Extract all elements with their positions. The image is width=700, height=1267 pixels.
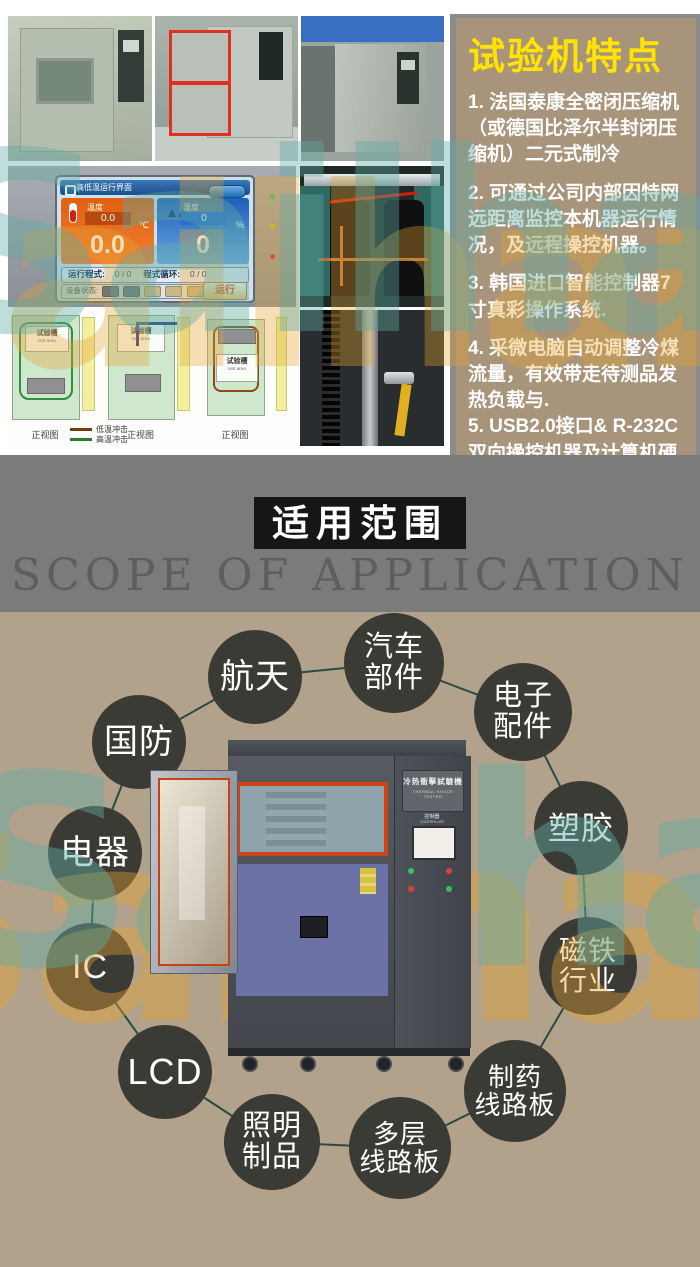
features-column: 试验机特点 1. 法国泰康全密闭压缩机（或德国比泽尔半封闭压缩机）二元式制冷 2… xyxy=(450,14,700,455)
indicator-red xyxy=(408,886,414,892)
status-button xyxy=(102,286,119,297)
compressor xyxy=(330,200,370,296)
controller-caption-en: CONTROLLER xyxy=(402,820,462,824)
chrome-valve xyxy=(384,372,414,384)
humidity-setpoint: 0 xyxy=(181,212,227,225)
chamber-control-strip xyxy=(259,32,283,80)
photo-controller-screen: 高低温运行界面 温度 0.0 ℃ 0.0 ▲▲ 湿度 0 % xyxy=(8,166,296,307)
hmi-menu-button xyxy=(208,185,246,198)
status-button xyxy=(123,286,140,297)
precool-box xyxy=(218,329,256,344)
steel-rail xyxy=(362,310,378,446)
machine-nameplate: 冷热衝擊試驗機 THERMAL SHOCK TESTER xyxy=(402,770,464,812)
indicator-red xyxy=(446,868,452,874)
bubble-pharma-circuit-board: 制药 线路板 xyxy=(464,1040,566,1142)
test-chamber-box: 试验槽 test area xyxy=(216,354,258,382)
diagram-front-view-3: 试验槽 test area xyxy=(207,319,265,416)
blue-ceiling xyxy=(301,16,444,42)
diagram-front-view-2: 试验槽 test area xyxy=(108,315,175,420)
controller-caption-cn: 控制器 xyxy=(402,813,462,820)
test-chamber-label: 试验槽 xyxy=(217,357,257,366)
humidity-unit: % xyxy=(236,220,244,230)
photo-collage: 高低温运行界面 温度 0.0 ℃ 0.0 ▲▲ 湿度 0 % xyxy=(0,14,448,455)
temperature-zone: 温度 0.0 ℃ 0.0 xyxy=(61,198,154,264)
door-window-sheen xyxy=(179,806,205,920)
scope-title-cn: 适用范围 xyxy=(254,497,466,549)
bubble-label: 线路板 xyxy=(474,1091,555,1119)
program-status-bar: 运行程式:0 / 0 程式循环:0 / 0 xyxy=(61,267,249,283)
temperature-unit: ℃ xyxy=(139,220,149,231)
feature-item: 2. 可通过公司内部因特网远距离监控本机器运行情况，及远程操控机器。 xyxy=(468,181,684,260)
caster-wheel xyxy=(300,1056,316,1072)
yellow-valve-handle xyxy=(394,384,411,437)
bubble-label: IC xyxy=(72,949,108,986)
chrome-bar xyxy=(304,174,440,186)
chamber-mini-screen xyxy=(401,60,415,70)
bubble-label: 电器 xyxy=(60,835,130,872)
scope-banner-section: 适用范围 SCOPE OF APPLICATION xyxy=(0,455,700,612)
bubble-label: 磁铁 xyxy=(559,936,617,966)
test-chamber-label: 试验槽 xyxy=(118,327,164,336)
hmi-title-text: 高低温运行界面 xyxy=(76,183,132,192)
chamber-mini-screen xyxy=(123,40,139,52)
bubble-label: 汽车 xyxy=(364,632,424,663)
hmi-screen: 高低温运行界面 温度 0.0 ℃ 0.0 ▲▲ 湿度 0 % xyxy=(55,175,255,303)
legend-row: 高温冲击 xyxy=(70,434,128,444)
heater-box xyxy=(125,374,161,392)
machine-photo: 冷热衝擊試驗機 THERMAL SHOCK TESTER 控制器 CONTROL… xyxy=(150,740,470,1072)
bubble-multilayer-circuit-board: 多层 线路板 xyxy=(349,1097,451,1199)
bubble-label: 航天 xyxy=(220,659,290,696)
lower-door-latch xyxy=(300,916,328,938)
run-button: 运行 xyxy=(203,282,247,300)
page: 高低温运行界面 温度 0.0 ℃ 0.0 ▲▲ 湿度 0 % xyxy=(0,0,700,1267)
yellow-duct xyxy=(276,317,287,411)
applications-section: Sailham Sailham 冷热衝擊試驗機 THERMAL SHOCK TE… xyxy=(0,612,700,1267)
diagram-front-view-1: 试验槽 test area xyxy=(12,315,80,420)
bezel-led-green xyxy=(270,194,275,199)
copper-pipe xyxy=(340,226,343,286)
status-button xyxy=(144,286,161,297)
feature-item: 5. USB2.0接口& R-232C双向操控机器及计算机硬盘储存数据. xyxy=(468,414,684,455)
duct-pipe xyxy=(136,322,139,346)
bubble-electronic-parts: 电子 配件 xyxy=(474,663,572,761)
thermometer-icon xyxy=(69,203,77,223)
status-button xyxy=(165,286,182,297)
photo-chamber-side xyxy=(301,16,444,161)
chamber-rack xyxy=(266,792,326,846)
bubble-lighting-products: 照明 制品 xyxy=(224,1094,320,1190)
legend-row: 低温冲击 xyxy=(70,424,128,434)
test-chamber-box: 试验槽 test area xyxy=(117,324,165,352)
legend-label: 高温冲击 xyxy=(96,434,128,445)
bubble-label: 行业 xyxy=(559,966,617,996)
test-chamber-box: 试验槽 test area xyxy=(25,326,69,352)
machine-viewing-window xyxy=(236,782,388,856)
diagram-legend: 低温冲击 高温冲击 xyxy=(70,424,128,444)
program-label: 运行程式: xyxy=(68,269,105,279)
feature-item: 3. 韩国进口智能控制器7寸真彩操作系统. xyxy=(468,271,684,323)
machine-lower-door xyxy=(236,864,388,996)
chamber-side-wall xyxy=(301,46,335,152)
controller-caption: 控制器 CONTROLLER xyxy=(402,813,462,824)
bubble-electrical-appliances: 电器 xyxy=(48,806,142,900)
bubble-label: 多层 xyxy=(373,1120,427,1148)
open-door-lower xyxy=(169,82,231,136)
test-chamber-sublabel: test area xyxy=(26,338,68,343)
test-chamber-sublabel: test area xyxy=(118,336,164,341)
corrugated-hose xyxy=(322,310,340,446)
teal-panel xyxy=(300,186,330,296)
feature-item: 1. 法国泰康全密闭压缩机（或德国比泽尔半封闭压缩机）二元式制冷 xyxy=(468,90,684,169)
bubble-aerospace: 航天 xyxy=(208,630,302,724)
features-title: 试验机特点 xyxy=(468,26,684,80)
humidity-zone: ▲▲ 湿度 0 % 0 xyxy=(157,198,249,264)
bubble-magnet-industry: 磁铁 行业 xyxy=(539,917,637,1015)
program-value: 0 / 0 xyxy=(115,269,132,279)
machine-name-cn: 冷热衝擊試驗機 xyxy=(403,776,463,787)
humidity-value: 0 xyxy=(157,231,249,260)
caster-wheel xyxy=(242,1056,258,1072)
temperature-setpoint: 0.0 xyxy=(85,212,131,225)
indicator-green xyxy=(408,868,414,874)
yellow-duct xyxy=(82,317,95,411)
bubble-label: 线路板 xyxy=(359,1148,440,1176)
bubble-label: 塑胶 xyxy=(548,811,614,846)
bezel-led-red xyxy=(270,254,275,259)
airflow-diagram: 试验槽 test area 试验槽 test area xyxy=(8,310,296,446)
bubble-label: 配件 xyxy=(493,712,553,743)
feature-item: 4. 采微电脑自动调整冷煤流量，有效带走待测品发热负载与. xyxy=(468,336,684,415)
open-door-upper xyxy=(169,30,231,84)
hmi-title-bar: 高低温运行界面 xyxy=(60,180,250,195)
device-status-bar: 设备状态: xyxy=(61,284,205,299)
test-chamber-sublabel: test area xyxy=(217,366,257,371)
bubble-label: 制品 xyxy=(242,1142,302,1173)
bubble-label: 照明 xyxy=(242,1111,302,1142)
bubble-ic: IC xyxy=(46,923,134,1011)
photo-chamber-doors-open xyxy=(155,16,298,161)
photo-chamber-front xyxy=(8,16,152,161)
scope-title-en: SCOPE OF APPLICATION xyxy=(0,550,700,601)
cold-shock-line-swatch xyxy=(70,428,92,431)
warning-stickers xyxy=(360,868,376,894)
hmi-app-icon xyxy=(65,185,76,196)
chamber-window xyxy=(36,58,94,104)
bubble-label: 电子 xyxy=(493,681,553,712)
bezel-led-yellow xyxy=(270,224,275,229)
machine-name-en: THERMAL SHOCK TESTER xyxy=(403,789,463,799)
top-section: 高低温运行界面 温度 0.0 ℃ 0.0 ▲▲ 湿度 0 % xyxy=(0,0,700,455)
features-panel: 试验机特点 1. 法国泰康全密闭压缩机（或德国比泽尔半封闭压缩机）二元式制冷 2… xyxy=(456,18,696,455)
yellow-duct xyxy=(177,317,190,411)
caster-wheel xyxy=(376,1056,392,1072)
copper-pipe xyxy=(318,258,428,261)
bubble-label: 制药 xyxy=(488,1063,542,1091)
bubble-label: 部件 xyxy=(364,663,424,694)
bubble-auto-parts: 汽车 部件 xyxy=(344,613,444,713)
temperature-value: 0.0 xyxy=(61,231,154,260)
caster-wheel xyxy=(448,1056,464,1072)
machine-base xyxy=(228,1048,470,1056)
machine-open-door xyxy=(150,770,238,974)
hot-shock-line-swatch xyxy=(70,438,92,441)
indicator-green xyxy=(446,886,452,892)
machine-controller-screen xyxy=(412,826,456,860)
compressor xyxy=(384,200,424,296)
door-gasket xyxy=(158,778,230,966)
status-button xyxy=(187,286,204,297)
cycle-value: 0 / 0 xyxy=(190,269,207,279)
heater-box xyxy=(27,378,65,394)
diagram-caption: 正视图 xyxy=(12,428,78,441)
bubble-plastics: 塑胶 xyxy=(534,781,628,875)
photo-piping-detail xyxy=(300,310,444,446)
device-status-label: 设备状态: xyxy=(66,286,98,295)
diagram-caption: 正视图 xyxy=(207,428,263,441)
test-chamber-label: 试验槽 xyxy=(26,329,68,338)
cycle-label: 程式循环: xyxy=(143,269,180,279)
photo-compressors xyxy=(300,166,444,307)
